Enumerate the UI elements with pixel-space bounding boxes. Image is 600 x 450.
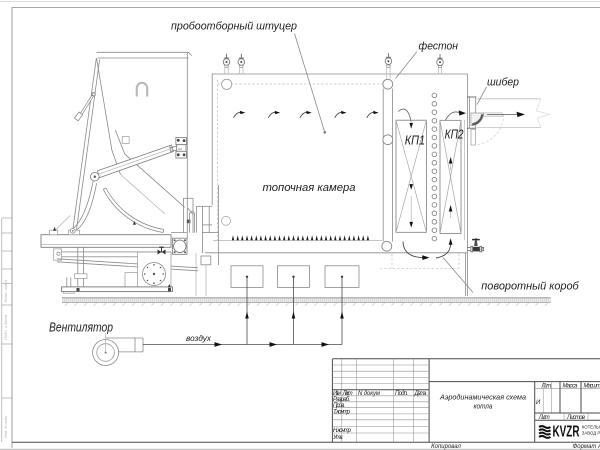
svg-text:Подп.: Подп. bbox=[395, 391, 408, 397]
svg-text:И: И bbox=[536, 400, 541, 406]
svg-text:Подп. и дата: Подп. и дата bbox=[3, 314, 8, 340]
svg-text:воздух: воздух bbox=[186, 334, 212, 343]
svg-text:пробоотборный штуцер: пробоотборный штуцер bbox=[171, 21, 297, 33]
svg-text:Лит.: Лит. bbox=[541, 384, 552, 390]
svg-text:Копировал: Копировал bbox=[431, 444, 461, 450]
svg-text:N докум: N докум bbox=[358, 391, 380, 397]
svg-text:топочная камера: топочная камера bbox=[263, 182, 356, 194]
svg-text:КП1: КП1 bbox=[405, 134, 425, 148]
svg-text:Утв.: Утв. bbox=[332, 435, 343, 441]
svg-text:Инв. N подл.: Инв. N подл. bbox=[3, 415, 8, 438]
svg-text:котла: котла bbox=[474, 401, 493, 410]
svg-text:Взам. инв N: Взам. инв N bbox=[3, 280, 8, 302]
svg-text:Пров.: Пров. bbox=[333, 403, 345, 409]
svg-text:поворотный короб: поворотный короб bbox=[481, 281, 579, 293]
svg-text:Лист: Лист bbox=[538, 415, 550, 421]
svg-text:Масштаб: Масштаб bbox=[584, 384, 600, 390]
svg-text:КОТЕЛЬНЫЙ: КОТЕЛЬНЫЙ bbox=[582, 425, 600, 430]
svg-text:ЗАВОД РОССИИ: ЗАВОД РОССИИ bbox=[582, 431, 600, 436]
svg-text:Т. контр: Т. контр bbox=[333, 409, 351, 415]
svg-text:КП2: КП2 bbox=[445, 128, 464, 142]
svg-text:Аэродинамическая схема: Аэродинамическая схема bbox=[439, 392, 526, 401]
svg-text:шибер: шибер bbox=[487, 77, 519, 89]
svg-text:Листов: Листов bbox=[566, 415, 585, 421]
svg-text:KVZR: KVZR bbox=[553, 423, 580, 440]
svg-text:Формат А2: Формат А2 bbox=[573, 444, 600, 450]
svg-text:Дата: Дата bbox=[414, 391, 428, 397]
svg-text:Вентилятор: Вентилятор bbox=[49, 321, 113, 335]
svg-text:Масса: Масса bbox=[563, 384, 579, 390]
svg-text:фестон: фестон bbox=[419, 41, 459, 53]
svg-text:Н. контр: Н. контр bbox=[333, 428, 352, 434]
